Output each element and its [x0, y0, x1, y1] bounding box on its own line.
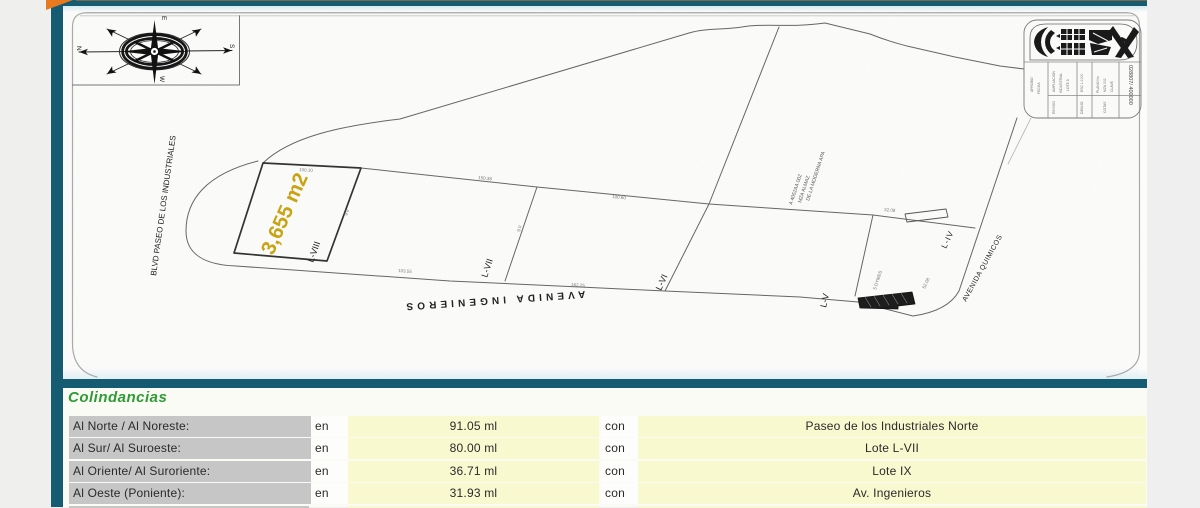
svg-text:PLANO No: PLANO No — [1096, 76, 1100, 93]
svg-text:162.25: 162.25 — [571, 282, 586, 288]
svg-text:APROBO: APROBO — [1030, 77, 1034, 92]
svg-text:E: E — [160, 16, 167, 21]
svg-text:W: W — [158, 76, 165, 83]
svg-text:ESC 1:1000: ESC 1:1000 — [1080, 74, 1084, 92]
svg-text:AMPLIACION: AMPLIACION — [1052, 71, 1056, 92]
svg-text:FECHA: FECHA — [1037, 82, 1041, 94]
svg-text:DIBUJO: DIBUJO — [1080, 101, 1084, 114]
svg-text:100.10: 100.10 — [299, 167, 314, 173]
svg-text:N: N — [75, 46, 82, 51]
svg-text:COTAS: COTAS — [1103, 101, 1107, 113]
svg-text:MZA 002: MZA 002 — [1103, 78, 1107, 92]
svg-text:103.55: 103.55 — [398, 268, 413, 274]
svg-text:028807/ 400000: 028807/ 400000 — [1127, 65, 1133, 105]
svg-text:CLAVE: CLAVE — [1110, 80, 1114, 92]
svg-text:INDUSTRIAL: INDUSTRIAL — [1059, 73, 1063, 93]
svg-text:32.08: 32.08 — [884, 207, 896, 213]
svg-text:LOTE 8: LOTE 8 — [1066, 79, 1070, 91]
svg-text:REVISO: REVISO — [1052, 101, 1056, 114]
svg-text:S: S — [228, 44, 235, 49]
